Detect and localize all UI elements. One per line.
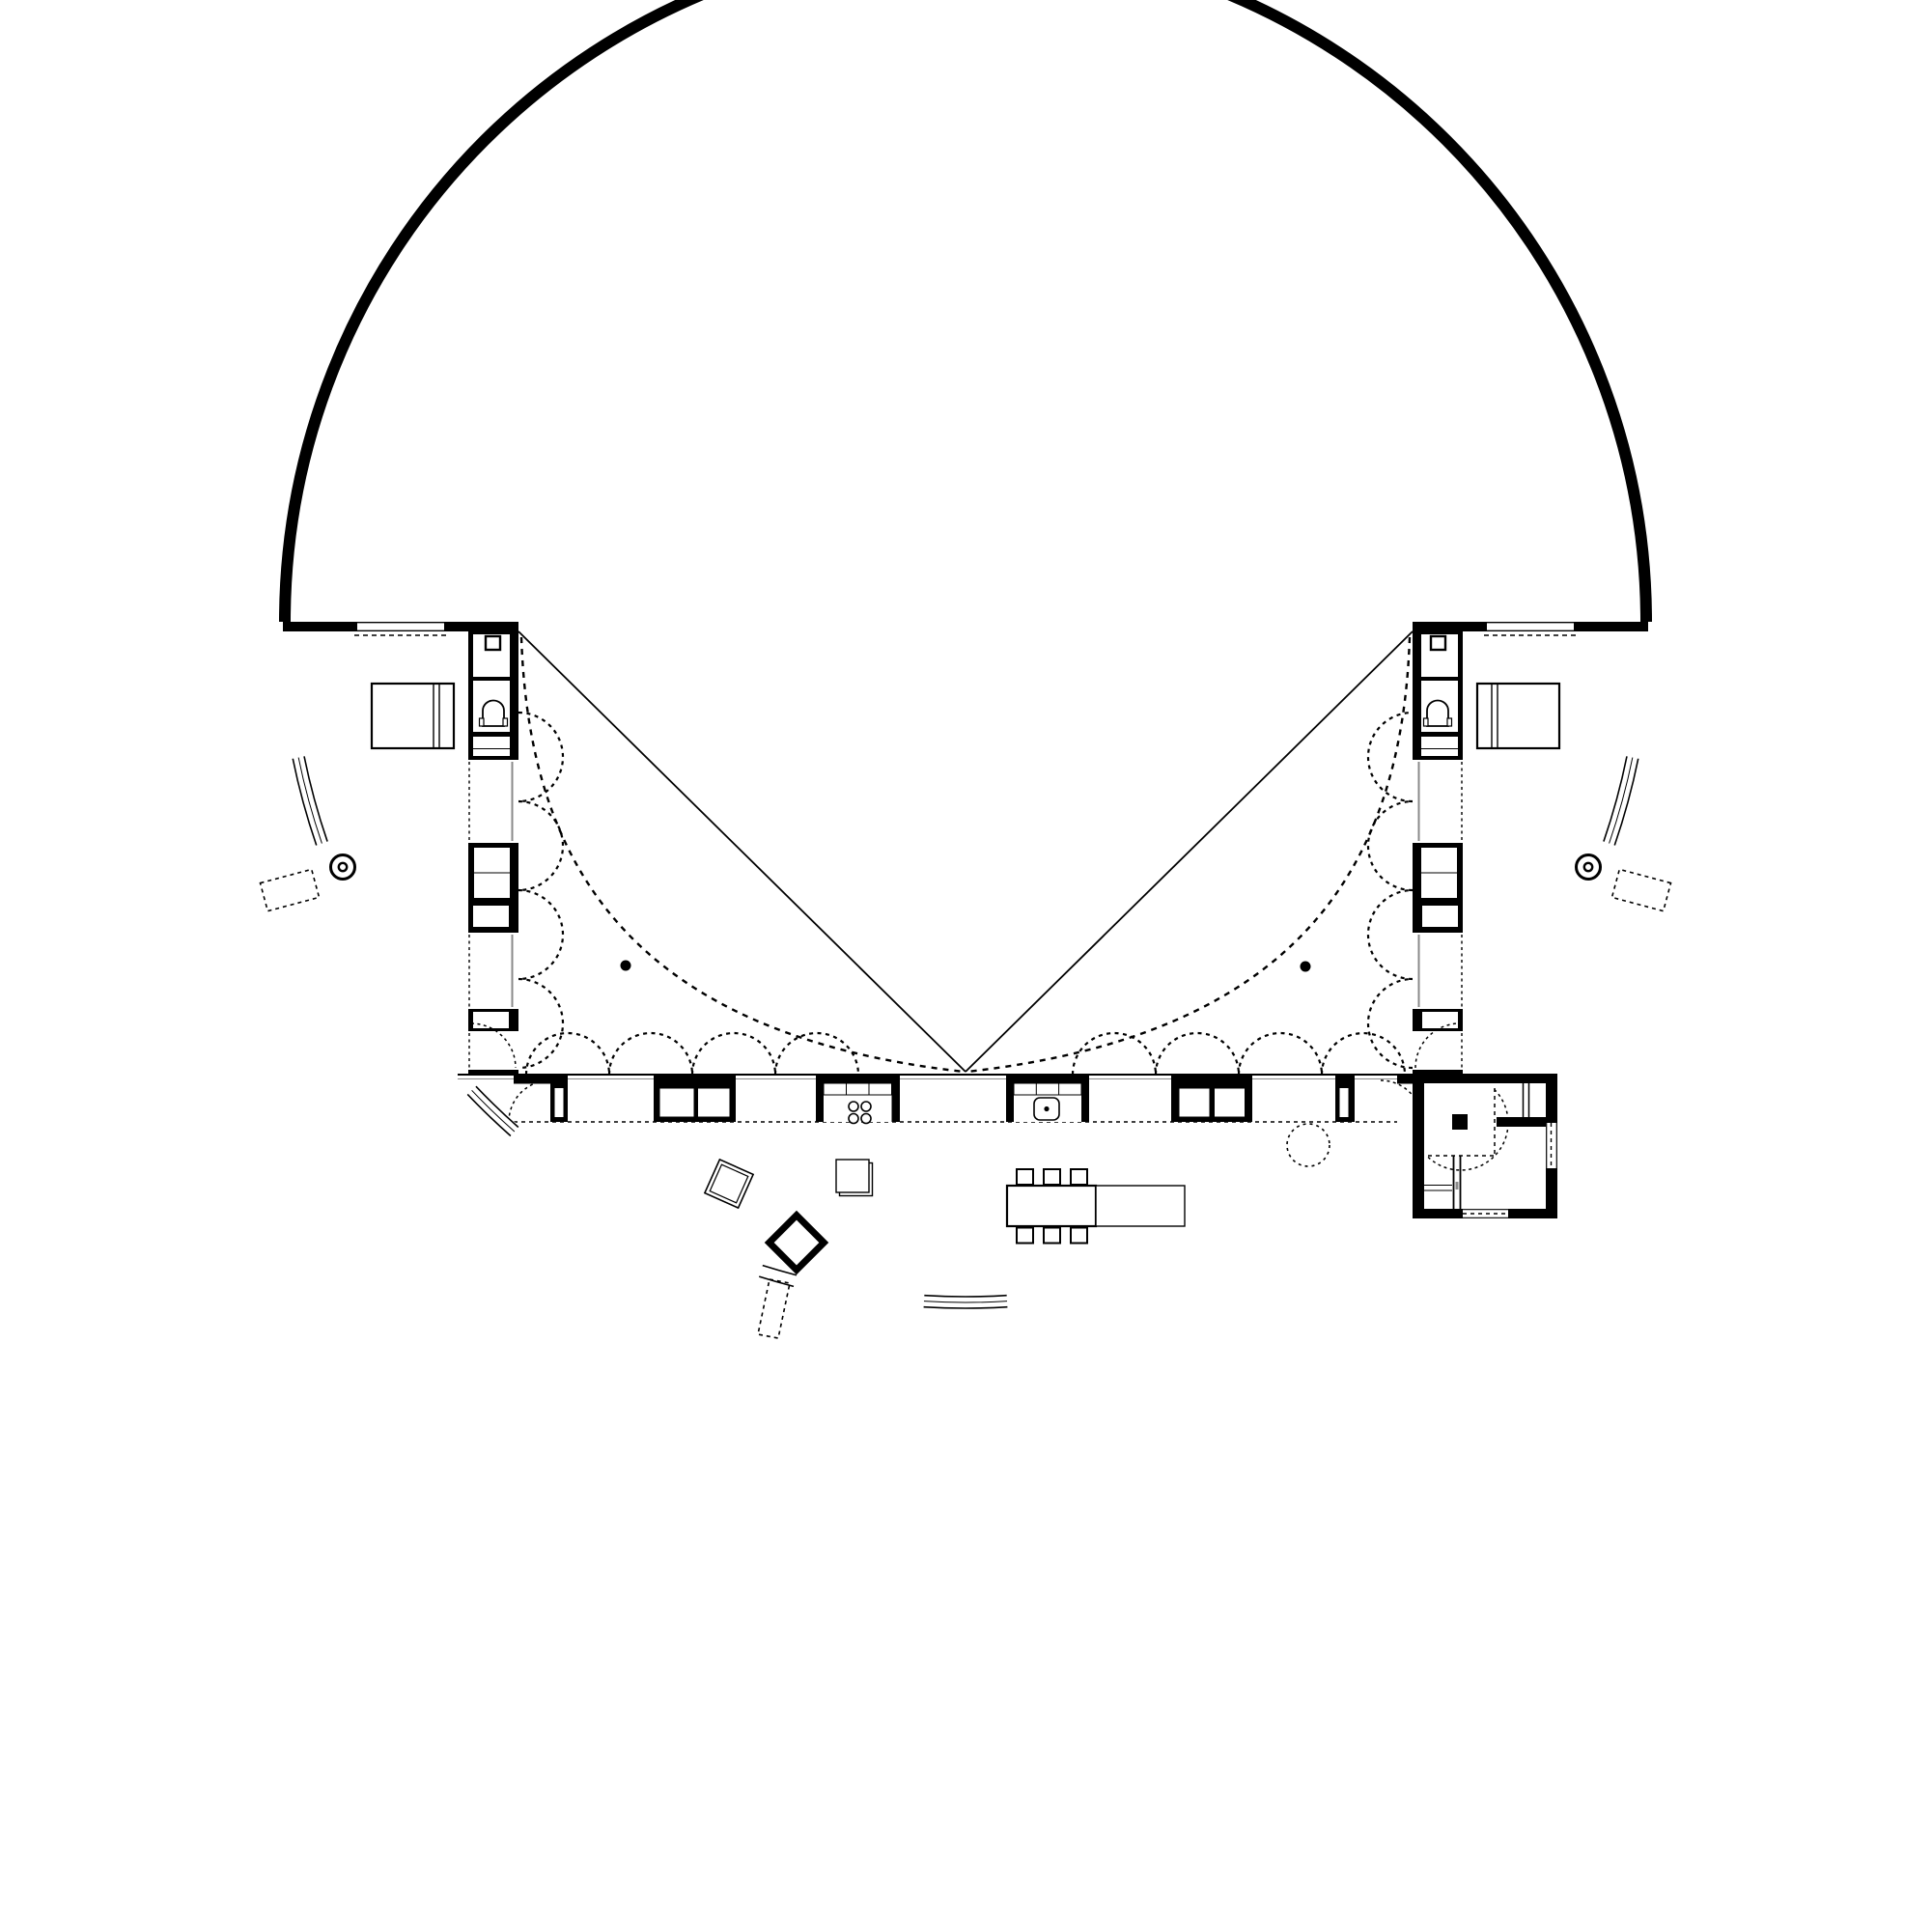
curtain-scallop	[518, 979, 563, 1068]
rotated-stool-outer	[705, 1160, 753, 1208]
left-closet-shelf	[473, 906, 509, 927]
right-closet-shelf	[1422, 906, 1458, 927]
cooktop-upper-cabinet-row	[824, 1083, 892, 1095]
hob-burner	[861, 1102, 871, 1111]
chord-wall-band	[1006, 1075, 1089, 1084]
dining-chair	[1017, 1228, 1033, 1244]
chord-wall-band	[1171, 1075, 1252, 1084]
right-passage-3	[1413, 1031, 1463, 1070]
bed-left	[372, 684, 454, 748]
sink-upper-cabinet-row	[1014, 1083, 1081, 1095]
curtain-scallop	[1322, 1033, 1405, 1075]
right-vanity-nook	[1421, 737, 1458, 756]
chord-wall-band	[1335, 1075, 1355, 1084]
curtain-scallop	[518, 801, 563, 890]
right-closet-shelf	[1422, 1012, 1458, 1028]
left-passage-2	[468, 933, 518, 1009]
curtain-scallop	[1368, 713, 1413, 801]
right-passage-2	[1413, 933, 1463, 1009]
pivot-knob-left-center	[339, 863, 347, 871]
curtain-scallop	[1368, 801, 1413, 890]
chord-wall-band	[816, 1075, 900, 1084]
exterior-step-dashed-right	[1612, 869, 1671, 910]
annex-wall-top	[1413, 1074, 1557, 1083]
dining-chair	[1017, 1169, 1033, 1185]
curved-facade-wall	[285, 0, 1646, 622]
wardrobe-unit-panel	[1179, 1088, 1210, 1117]
courtyard-catenary-curtain-left	[521, 637, 964, 1072]
curtain-scallop	[1368, 890, 1413, 979]
kitchen-sink-drain	[1044, 1106, 1049, 1111]
left-shower-fixture	[486, 636, 500, 650]
annex-bottom-opening	[1463, 1209, 1508, 1218]
wardrobe-unit-panel	[698, 1088, 731, 1117]
right-shower-fixture	[1431, 636, 1445, 650]
dining-chair	[1071, 1228, 1087, 1244]
right-passage-1	[1413, 760, 1463, 843]
dashed-utility-circle	[1287, 1124, 1330, 1166]
curtain-scallop	[692, 1033, 775, 1075]
left-vanity-nook	[473, 737, 510, 756]
left-closet-shelf	[473, 1012, 509, 1028]
curtain-scallop	[1368, 979, 1413, 1068]
right-toilet-foot	[1447, 718, 1452, 726]
annex-door-swing	[1427, 1089, 1508, 1170]
dining-table	[1007, 1186, 1096, 1226]
curtain-scallop	[526, 1033, 609, 1075]
right-toilet-foot	[1424, 718, 1429, 726]
chord-wall-band	[654, 1075, 736, 1084]
courtyard-catenary-curtain-right	[967, 637, 1410, 1072]
top-window-right	[1487, 622, 1574, 631]
annex-post	[1452, 1114, 1468, 1130]
curtain-scallop	[518, 890, 563, 979]
curtain-scallop	[1239, 1033, 1322, 1075]
pivot-knob-right-center	[1584, 863, 1592, 871]
top-window-left	[357, 622, 444, 631]
curtain-scallop	[518, 713, 563, 801]
left-toilet-foot	[503, 718, 508, 726]
side-table	[836, 1160, 869, 1192]
dining-chair	[1071, 1169, 1087, 1185]
dining-table-extension	[1096, 1186, 1185, 1226]
door-swing	[509, 1080, 550, 1122]
lounge-chair-diamond	[770, 1216, 825, 1271]
floor-plan-drawing	[0, 0, 1932, 1931]
wardrobe-unit-panel	[1215, 1088, 1246, 1117]
left-toilet	[483, 701, 504, 727]
curtain-scallop	[609, 1033, 692, 1075]
storage-unit-end-slot	[1340, 1088, 1349, 1117]
right-toilet	[1427, 701, 1448, 727]
hob-burner	[849, 1102, 858, 1111]
structural-column-dot-left	[621, 961, 631, 971]
curtain-scallop	[1156, 1033, 1239, 1075]
left-toilet-foot	[480, 718, 485, 726]
chord-wall-band	[514, 1075, 568, 1084]
floor-plan-page	[0, 0, 1932, 1931]
dining-chair	[1044, 1169, 1060, 1185]
annex-wall-left	[1413, 1074, 1424, 1218]
hob-burner	[861, 1114, 871, 1124]
chord-wall-band	[1397, 1075, 1413, 1084]
storage-unit-end-slot	[555, 1088, 564, 1117]
dining-chair	[1044, 1228, 1060, 1244]
curtain-scallop	[1073, 1033, 1156, 1075]
roof-valley-line-right	[966, 631, 1413, 1072]
exterior-step-dashed-bottom	[758, 1279, 790, 1338]
left-passage-3	[468, 1031, 518, 1070]
bed-right	[1477, 684, 1559, 748]
annex-interior-wall	[1497, 1117, 1546, 1127]
roof-valley-line-left	[518, 631, 966, 1072]
annex-right-opening	[1546, 1123, 1557, 1168]
curtain-scallop	[775, 1033, 858, 1075]
left-passage-1	[468, 760, 518, 843]
wardrobe-unit-panel	[659, 1088, 694, 1117]
structural-column-dot-right	[1301, 962, 1311, 972]
exterior-step-dashed-left	[261, 869, 320, 910]
hob-burner	[849, 1114, 858, 1124]
